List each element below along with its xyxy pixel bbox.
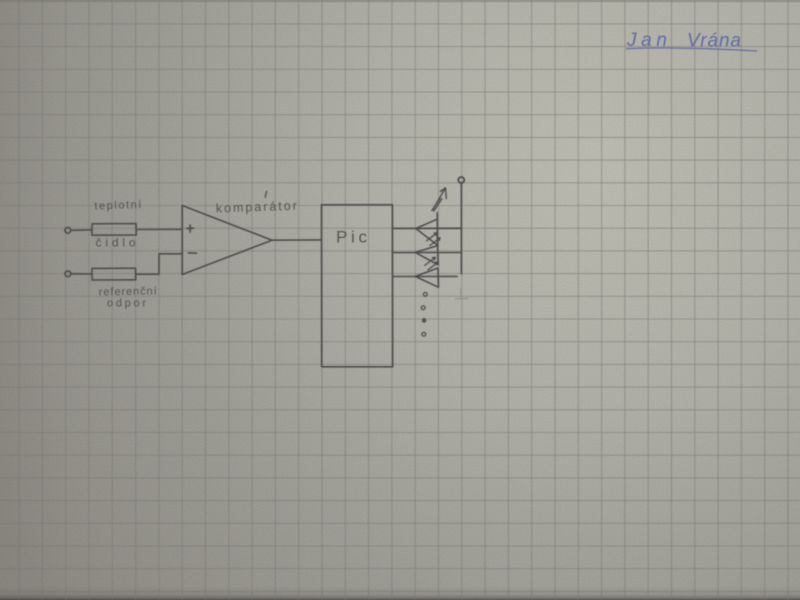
svg-text:komparátor: komparátor [216,199,297,216]
svg-text:Pic: Pic [336,228,368,247]
svg-text:teplotní: teplotní [94,199,141,213]
